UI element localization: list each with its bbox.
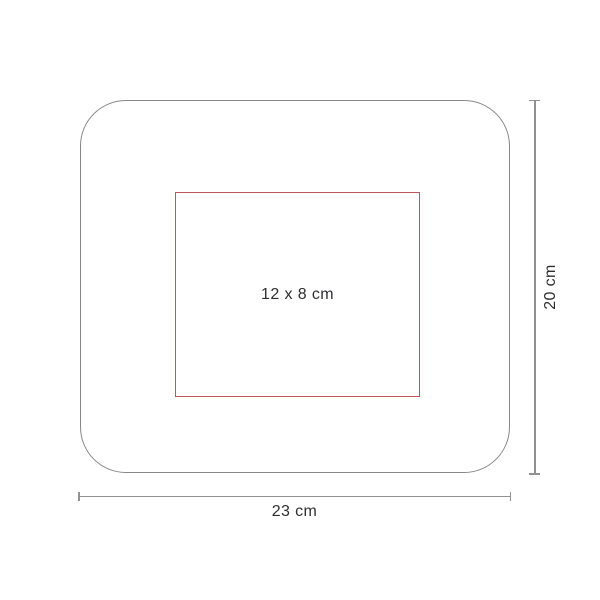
height-dimension-label: 20 cm <box>542 264 560 310</box>
width-dimension-line <box>78 496 511 498</box>
width-dimension-label: 23 cm <box>78 503 511 521</box>
print-area-size-label: 12 x 8 cm <box>261 286 334 304</box>
width-dimension-tick-right <box>510 492 512 501</box>
print-area-outline: 12 x 8 cm <box>175 192 420 397</box>
width-dimension-tick-left <box>78 492 80 501</box>
dimension-diagram-canvas: 12 x 8 cm 20 cm 23 cm <box>0 0 600 600</box>
height-dimension-label-wrapper: 20 cm <box>536 100 566 474</box>
